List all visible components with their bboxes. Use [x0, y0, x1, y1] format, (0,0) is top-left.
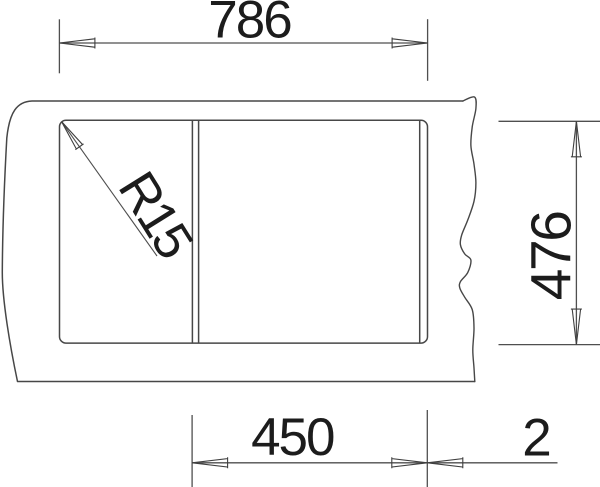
- svg-text:786: 786: [208, 0, 291, 50]
- svg-text:450: 450: [251, 408, 334, 467]
- svg-text:2: 2: [522, 408, 551, 467]
- svg-text:476: 476: [520, 212, 584, 300]
